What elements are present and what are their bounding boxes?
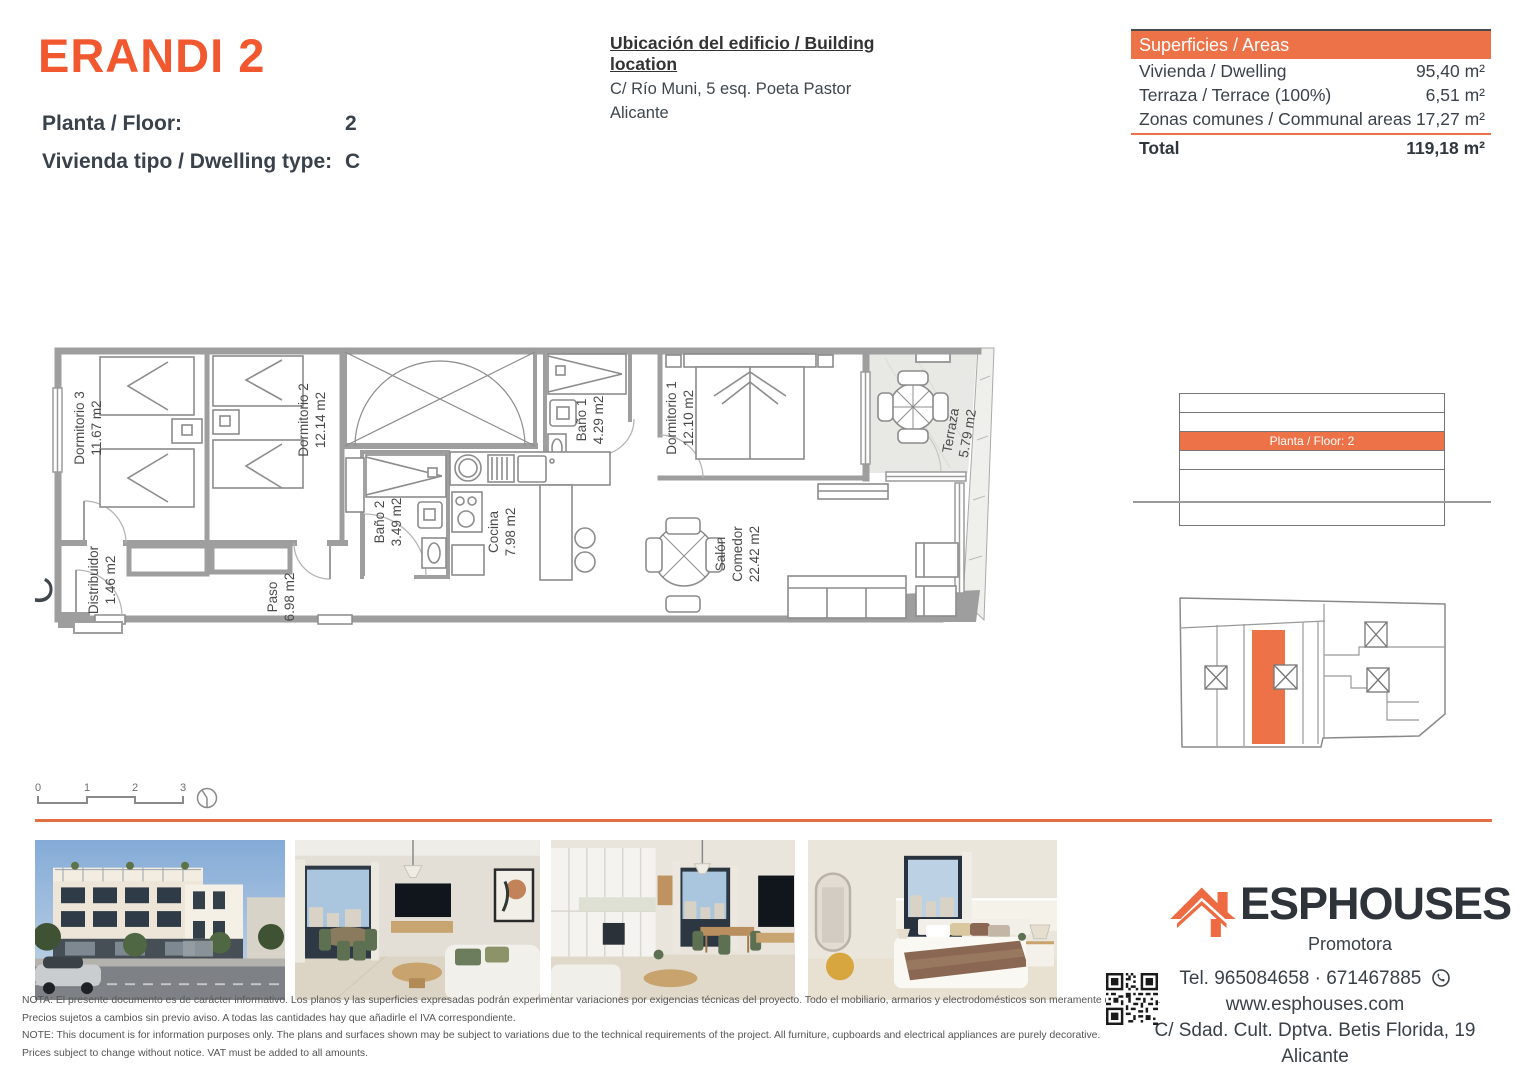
- svg-text:1.46 m2: 1.46 m2: [103, 556, 118, 605]
- room-label-dormitorio1: Dormitorio 1 12.10 m2: [664, 381, 696, 455]
- stair-core: [345, 352, 535, 446]
- esphouses-logo-text: ESPHOUSES: [1240, 878, 1511, 930]
- row-label: Zonas comunes / Communal areas: [1139, 108, 1411, 130]
- logo-subtitle: Promotora: [1240, 934, 1460, 955]
- website: www.esphouses.com: [1145, 992, 1485, 1018]
- phone-numbers: Tel. 965084658 · 671467885: [1179, 968, 1421, 989]
- table-row: Vivienda / Dwelling 95,40 m²: [1131, 59, 1491, 83]
- north-arrow-icon: [198, 789, 217, 808]
- dwelling-type-label: Vivienda tipo / Dwelling type:: [42, 150, 332, 173]
- svg-text:12.10 m2: 12.10 m2: [681, 390, 696, 446]
- floor-row: Planta / Floor: 2: [42, 112, 422, 136]
- elevation-diagram: Planta / Floor: 2: [1179, 393, 1445, 526]
- room-label-bano2: Baño 2 3.49 m2: [372, 498, 404, 547]
- bedroom2-furniture: [213, 356, 303, 488]
- footer-divider: [35, 819, 1492, 822]
- photo-living-room: [295, 840, 540, 1000]
- living-room-render: [295, 840, 540, 1000]
- room-label-dormitorio3: Dormitorio 3 11.67 m2: [72, 391, 104, 465]
- row-value: 6,51 m²: [1426, 84, 1485, 106]
- room-label-salon-comedor: Salón Comedor 22.42 m2: [713, 526, 762, 582]
- row-value: 17,27 m²: [1416, 108, 1485, 130]
- phone-line: Tel. 965084658 · 671467885: [1145, 966, 1485, 992]
- svg-text:3: 3: [180, 782, 186, 794]
- svg-text:4.29 m2: 4.29 m2: [591, 396, 606, 445]
- svg-text:3.49 m2: 3.49 m2: [389, 498, 404, 547]
- bedroom3-furniture: [100, 357, 202, 507]
- room-label-dormitorio2: Dormitorio 2 12.14 m2: [296, 383, 328, 457]
- svg-text:12.14 m2: 12.14 m2: [313, 392, 328, 448]
- svg-text:22.42 m2: 22.42 m2: [747, 526, 762, 582]
- total-value: 119,18 m²: [1406, 137, 1485, 160]
- svg-text:Salón: Salón: [713, 537, 728, 572]
- svg-text:Dormitorio 3: Dormitorio 3: [72, 391, 87, 465]
- disclaimer: NOTA: El presente documento es de caráct…: [22, 992, 1097, 1062]
- location-address: C/ Río Muni, 5 esq. Poeta Pastor: [610, 80, 940, 99]
- svg-text:2: 2: [132, 782, 138, 794]
- location-city: Alicante: [610, 104, 940, 123]
- total-label: Total: [1139, 137, 1180, 160]
- building-exterior-render: [35, 840, 285, 1000]
- room-label-cocina: Cocina 7.98 m2: [486, 508, 518, 557]
- disclaimer-line: NOTA: El presente documento es de caráct…: [22, 992, 1097, 1010]
- svg-text:Paso: Paso: [265, 582, 280, 613]
- photo-bedroom: [808, 840, 1057, 1000]
- disclaimer-line: NOTE: This document is for information p…: [22, 1027, 1097, 1045]
- scale-tick-labels: 0 1 2 3: [35, 782, 186, 794]
- ground-line: [1133, 501, 1491, 503]
- row-value: 95,40 m²: [1416, 60, 1485, 82]
- kitchen-fixtures: [450, 452, 610, 580]
- photo-kitchen: [551, 840, 795, 1000]
- elevation-floor-band: [1180, 394, 1444, 413]
- location-title: Ubicación del edificio / Building locati…: [610, 33, 940, 75]
- room-label-paso: Paso 6.98 m2: [265, 573, 297, 622]
- table-total-row: Total 119,18 m²: [1131, 135, 1491, 160]
- building-location: Ubicación del edificio / Building locati…: [610, 33, 940, 123]
- svg-text:0: 0: [35, 782, 41, 794]
- disclaimer-line: Precios sujetos a cambios sin previo avi…: [22, 1010, 1097, 1028]
- whatsapp-icon: [1431, 968, 1451, 988]
- elevation-ground-band: [1180, 470, 1444, 525]
- table-row: Zonas comunes / Communal areas 17,27 m²: [1131, 107, 1491, 131]
- svg-text:Comedor: Comedor: [730, 526, 745, 582]
- row-label: Vivienda / Dwelling: [1139, 60, 1287, 82]
- svg-text:Cocina: Cocina: [486, 511, 501, 554]
- svg-text:1: 1: [84, 782, 90, 794]
- table-row: Terraza / Terrace (100%) 6,51 m²: [1131, 83, 1491, 107]
- elevation-floor-band: [1180, 413, 1444, 432]
- svg-text:Dormitorio 1: Dormitorio 1: [664, 381, 679, 455]
- floor-label: Planta / Floor:: [42, 112, 182, 135]
- address-city: Alicante: [1145, 1044, 1485, 1070]
- disclaimer-line: Prices subject to change without notice.…: [22, 1045, 1097, 1063]
- dwelling-type-letter: C: [35, 577, 61, 604]
- floor-plan: Dormitorio 3 11.67 m2 Dormitorio 2 12.14…: [35, 340, 1015, 640]
- page-title: ERANDI 2: [38, 28, 265, 83]
- svg-text:Baño 1: Baño 1: [574, 399, 589, 442]
- areas-table-header: Superficies / Areas: [1131, 31, 1491, 59]
- elevation-floor-band: [1180, 451, 1444, 470]
- room-label-bano1: Baño 1 4.29 m2: [574, 396, 606, 445]
- elevation-highlight-band: Planta / Floor: 2: [1180, 432, 1444, 451]
- floor-value: 2: [345, 112, 357, 136]
- svg-text:Distribuidor: Distribuidor: [86, 545, 101, 614]
- room-label-distribuidor: Distribuidor 1.46 m2: [86, 545, 118, 614]
- scale-bar-line: [38, 796, 183, 803]
- svg-text:6.98 m2: 6.98 m2: [282, 573, 297, 622]
- svg-text:7.98 m2: 7.98 m2: [503, 508, 518, 557]
- contact-block: Tel. 965084658 · 671467885 www.esphouses…: [1145, 966, 1485, 1070]
- row-label: Terraza / Terrace (100%): [1139, 84, 1331, 106]
- dwelling-type-value: C: [345, 150, 360, 174]
- areas-table: Superficies / Areas Vivienda / Dwelling …: [1131, 29, 1491, 160]
- svg-text:Dormitorio 2: Dormitorio 2: [296, 383, 311, 457]
- kitchen-render: [551, 840, 795, 1000]
- corridor-wardrobes: [129, 546, 290, 574]
- bedroom-render: [808, 840, 1057, 1000]
- dwelling-type-row: Vivienda tipo / Dwelling type: C: [42, 150, 422, 174]
- plan-sheet: ERANDI 2 Planta / Floor: 2 Vivienda tipo…: [0, 0, 1527, 1080]
- esphouses-logo-icon: [1168, 876, 1240, 944]
- address-line: C/ Sdad. Cult. Dptva. Betis Florida, 19: [1145, 1018, 1485, 1044]
- qr-code: [1106, 973, 1158, 1025]
- scale-bar: 0 1 2 3: [30, 780, 230, 812]
- site-key-plan: [1173, 592, 1449, 754]
- svg-text:11.67 m2: 11.67 m2: [89, 400, 104, 455]
- photo-building-exterior: [35, 840, 285, 1000]
- svg-text:Baño 2: Baño 2: [372, 501, 387, 544]
